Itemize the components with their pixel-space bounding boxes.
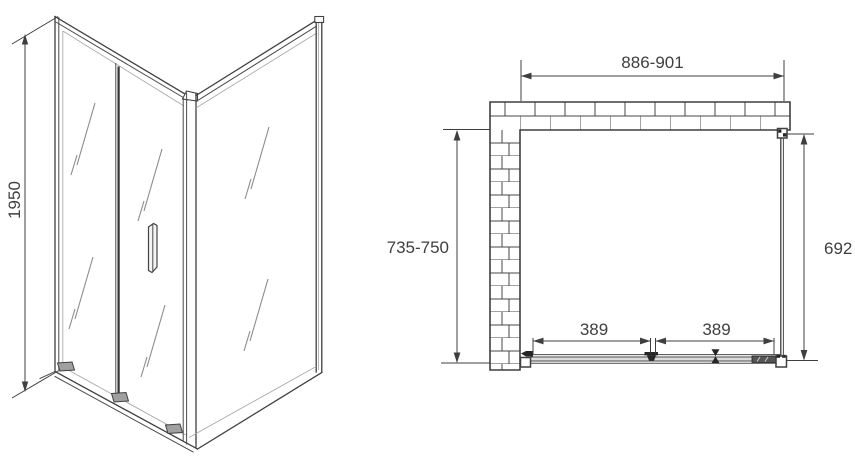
bracket-clip bbox=[778, 130, 781, 133]
arrow-left-icon bbox=[521, 73, 532, 80]
side-glass-dimension: 692 bbox=[787, 134, 852, 361]
wall-profile bbox=[55, 17, 63, 372]
wall-outline bbox=[490, 102, 790, 370]
glass-mark-icon bbox=[71, 103, 95, 175]
depth-dimension: 735-750 bbox=[387, 130, 490, 364]
top-rail bbox=[55, 17, 188, 107]
corner-post bbox=[183, 91, 198, 447]
panel-right-label: 389 bbox=[702, 320, 730, 339]
arrow-down-icon bbox=[454, 353, 461, 364]
drawing-canvas: 1950 bbox=[0, 0, 855, 458]
arrow-up-icon bbox=[22, 34, 28, 45]
arrow-down-icon bbox=[801, 350, 808, 361]
shower-enclosure-drawing: 1950 bbox=[0, 0, 855, 458]
door-divider bbox=[116, 64, 119, 398]
arrow-down-icon bbox=[22, 382, 28, 393]
roller-icon bbox=[166, 424, 183, 434]
side-panel bbox=[189, 17, 324, 450]
roller-carriage-icon bbox=[752, 356, 776, 362]
door-handle bbox=[149, 224, 158, 273]
height-dimension: 1950 bbox=[5, 17, 58, 399]
arrow-left-icon bbox=[533, 338, 544, 345]
arrow-up-icon bbox=[801, 134, 808, 145]
panel-dimensions: 389 389 bbox=[533, 320, 774, 355]
post-cap bbox=[315, 17, 324, 23]
glass-mark-icon bbox=[138, 149, 162, 221]
corner-clip bbox=[782, 355, 786, 358]
width-label: 886-901 bbox=[621, 53, 683, 72]
arrow-right-icon bbox=[640, 338, 651, 345]
panel-left-label: 389 bbox=[580, 320, 608, 339]
width-dimension: 886-901 bbox=[521, 53, 784, 101]
wall-bracket-icon bbox=[521, 351, 533, 357]
track-fill bbox=[531, 357, 781, 361]
glass-marks bbox=[69, 103, 269, 377]
brick-wall bbox=[490, 102, 790, 370]
glass-mark-icon bbox=[141, 305, 165, 377]
depth-label: 735-750 bbox=[387, 238, 449, 257]
arrow-right-icon bbox=[774, 73, 785, 80]
door-track bbox=[520, 349, 787, 367]
front-view: 1950 bbox=[5, 17, 324, 453]
glass-mark-icon bbox=[245, 127, 269, 199]
roller-icon bbox=[112, 393, 129, 403]
arrow-right-icon bbox=[764, 338, 775, 345]
bracket-clip bbox=[783, 133, 786, 136]
height-label: 1950 bbox=[5, 181, 24, 219]
wall-profile-section bbox=[521, 358, 531, 368]
side-glass-label: 692 bbox=[824, 239, 852, 258]
glass-mark-icon bbox=[69, 257, 93, 329]
glass-mark-icon bbox=[244, 279, 268, 351]
corner-clip bbox=[777, 355, 781, 358]
side-glass-panel bbox=[778, 129, 788, 357]
knob-icon bbox=[712, 349, 720, 363]
plan-view: 886-901 735-750 692 bbox=[387, 53, 853, 370]
roller-icon bbox=[58, 362, 75, 371]
arrow-left-icon bbox=[656, 338, 667, 345]
arrow-up-icon bbox=[454, 130, 461, 141]
